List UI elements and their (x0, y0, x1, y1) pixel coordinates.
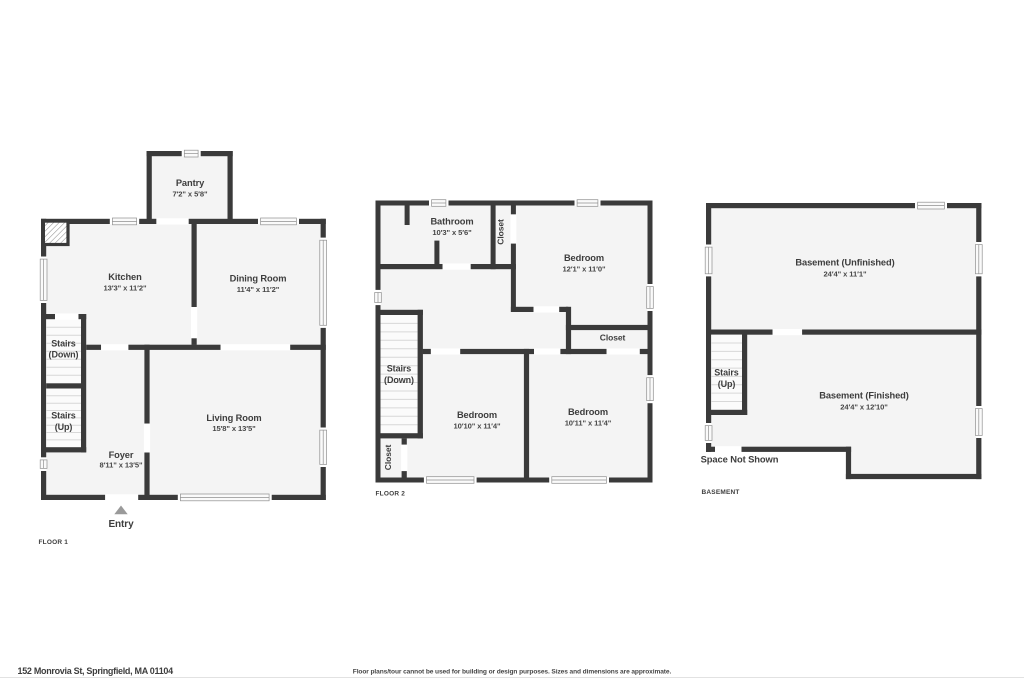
svg-text:Closet: Closet (496, 219, 506, 245)
svg-text:Bathroom: Bathroom (430, 217, 473, 227)
svg-text:Basement (Unfinished): Basement (Unfinished) (795, 258, 894, 268)
svg-text:13′3" x 11′2": 13′3" x 11′2" (104, 284, 147, 293)
svg-text:24′4" x 12′10": 24′4" x 12′10" (840, 403, 888, 412)
svg-text:FLOOR 1: FLOOR 1 (39, 539, 69, 546)
svg-text:(Up): (Up) (55, 422, 73, 432)
svg-text:Basement (Finished): Basement (Finished) (819, 391, 909, 401)
svg-text:Entry: Entry (108, 519, 134, 530)
svg-text:Stairs: Stairs (51, 339, 76, 349)
svg-text:15′8" x 13′5": 15′8" x 13′5" (212, 424, 256, 433)
svg-text:Closet: Closet (600, 333, 626, 343)
svg-text:Pantry: Pantry (176, 178, 205, 188)
svg-text:(Down): (Down) (384, 375, 414, 385)
svg-text:(Down): (Down) (49, 350, 79, 360)
svg-text:(Up): (Up) (718, 379, 736, 389)
svg-text:10′11" x 11′4": 10′11" x 11′4" (565, 419, 612, 428)
svg-text:7′2" x 5′8": 7′2" x 5′8" (172, 190, 208, 199)
svg-text:Space Not Shown: Space Not Shown (701, 454, 779, 465)
svg-text:Foyer: Foyer (109, 450, 134, 460)
svg-text:Bedroom: Bedroom (457, 410, 497, 420)
svg-text:Floor plans/tour cannot be use: Floor plans/tour cannot be used for buil… (353, 669, 672, 676)
svg-text:8′11" x 13′5": 8′11" x 13′5" (100, 461, 143, 470)
svg-text:BASEMENT: BASEMENT (702, 489, 740, 496)
svg-text:FLOOR 2: FLOOR 2 (376, 491, 406, 498)
svg-text:Living Room: Living Room (206, 413, 261, 423)
svg-text:10′10" x 11′4": 10′10" x 11′4" (453, 422, 501, 431)
svg-text:152 Monrovia St, Springfield,: 152 Monrovia St, Springfield, MA 01104 (18, 666, 174, 676)
svg-text:24′4" x 11′1": 24′4" x 11′1" (824, 270, 867, 279)
svg-text:Bedroom: Bedroom (564, 253, 604, 263)
svg-text:10′3" x 5′6": 10′3" x 5′6" (432, 228, 472, 237)
svg-text:Stairs: Stairs (51, 411, 76, 421)
svg-text:Stairs: Stairs (387, 364, 412, 374)
svg-text:12′1" x 11′0": 12′1" x 11′0" (563, 265, 606, 274)
svg-text:Closet: Closet (383, 445, 393, 471)
svg-text:11′4" x 11′2": 11′4" x 11′2" (237, 285, 280, 294)
svg-text:Bedroom: Bedroom (568, 407, 608, 417)
svg-text:Dining Room: Dining Room (230, 274, 287, 284)
svg-text:Stairs: Stairs (714, 368, 739, 378)
svg-text:Kitchen: Kitchen (108, 272, 142, 282)
